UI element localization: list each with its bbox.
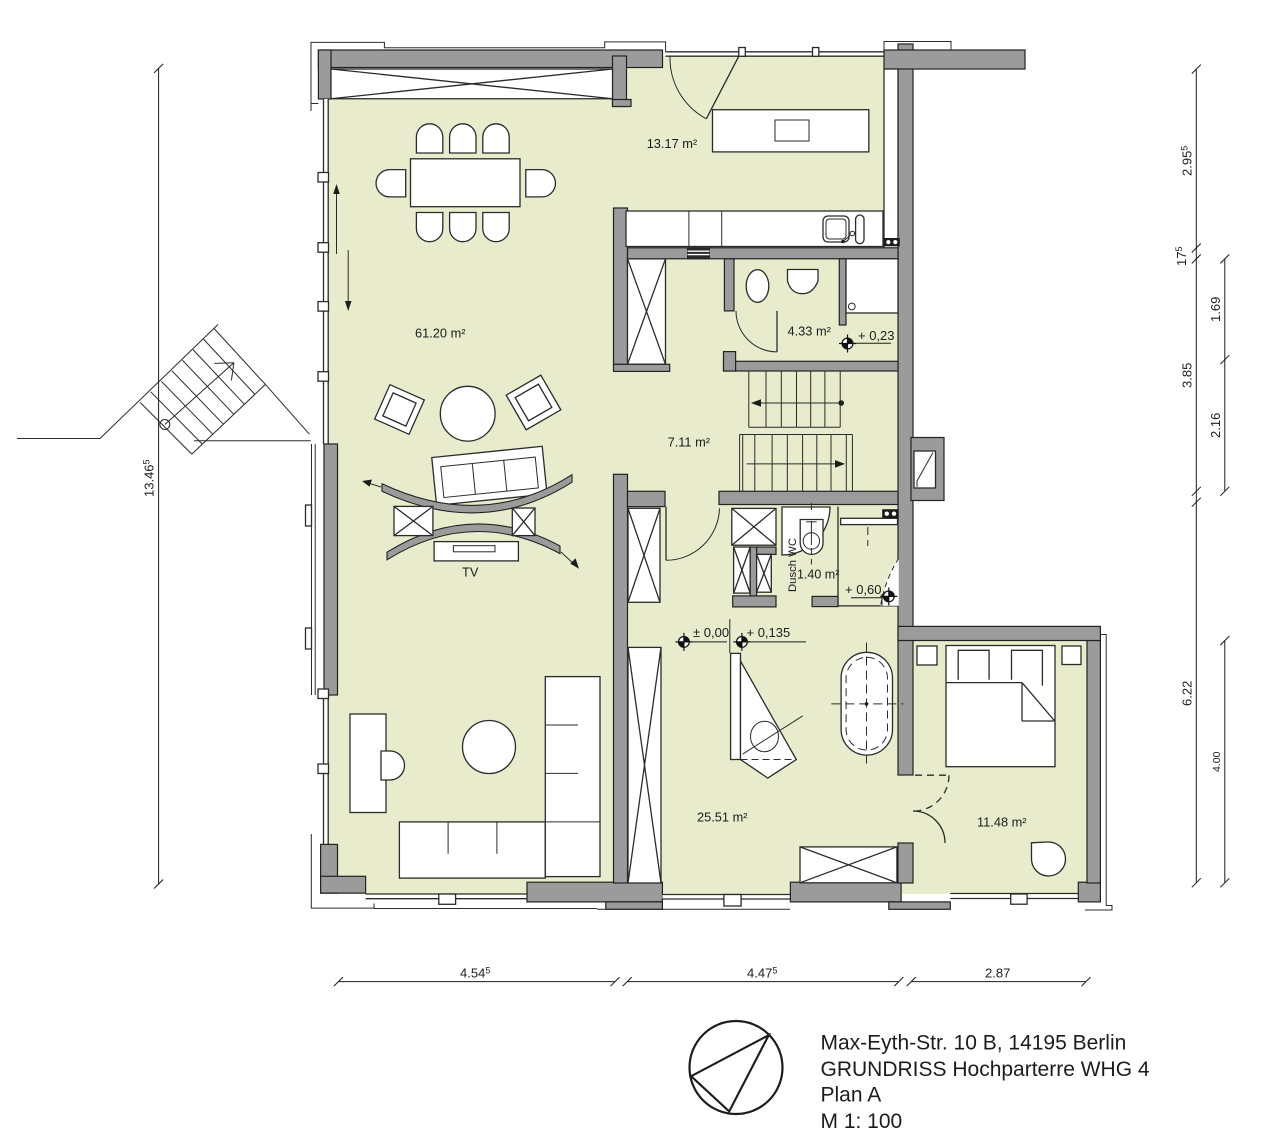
svg-text:175: 175: [1174, 247, 1189, 266]
svg-text:+ 0,23: + 0,23: [858, 328, 895, 343]
svg-text:13.465: 13.465: [142, 459, 157, 497]
svg-text:7.11 m²: 7.11 m²: [668, 435, 711, 450]
svg-text:2.87: 2.87: [985, 966, 1010, 981]
svg-text:Dusch WC: Dusch WC: [787, 538, 799, 592]
svg-text:4.33 m²: 4.33 m²: [788, 324, 832, 339]
svg-text:M 1: 100: M 1: 100: [821, 1110, 903, 1133]
svg-text:+ 0,135: + 0,135: [747, 625, 791, 640]
svg-text:2.16: 2.16: [1208, 413, 1223, 438]
svg-text:4.545: 4.545: [460, 966, 490, 981]
svg-text:13.17 m²: 13.17 m²: [647, 136, 698, 151]
svg-text:1.40 m²: 1.40 m²: [797, 568, 839, 582]
svg-text:6.22: 6.22: [1180, 681, 1195, 706]
svg-text:Plan A: Plan A: [821, 1084, 882, 1107]
svg-text:Max-Eyth-Str. 10 B, 14195 Berl: Max-Eyth-Str. 10 B, 14195 Berlin: [821, 1032, 1127, 1055]
svg-text:GRUNDRISS Hochparterre WHG 4: GRUNDRISS Hochparterre WHG 4: [821, 1058, 1150, 1081]
svg-text:4.00: 4.00: [1211, 751, 1223, 772]
svg-text:61.20 m²: 61.20 m²: [415, 326, 466, 341]
svg-text:+ 0,60: + 0,60: [845, 582, 882, 597]
svg-text:3.85: 3.85: [1180, 363, 1195, 388]
svg-text:25.51 m²: 25.51 m²: [697, 810, 748, 825]
svg-text:11.48 m²: 11.48 m²: [977, 815, 1027, 830]
svg-text:TV: TV: [462, 565, 479, 580]
svg-text:1.69: 1.69: [1208, 297, 1223, 322]
svg-text:± 0,00: ± 0,00: [693, 625, 729, 640]
svg-text:4.475: 4.475: [747, 966, 777, 981]
svg-text:2.955: 2.955: [1180, 146, 1195, 176]
